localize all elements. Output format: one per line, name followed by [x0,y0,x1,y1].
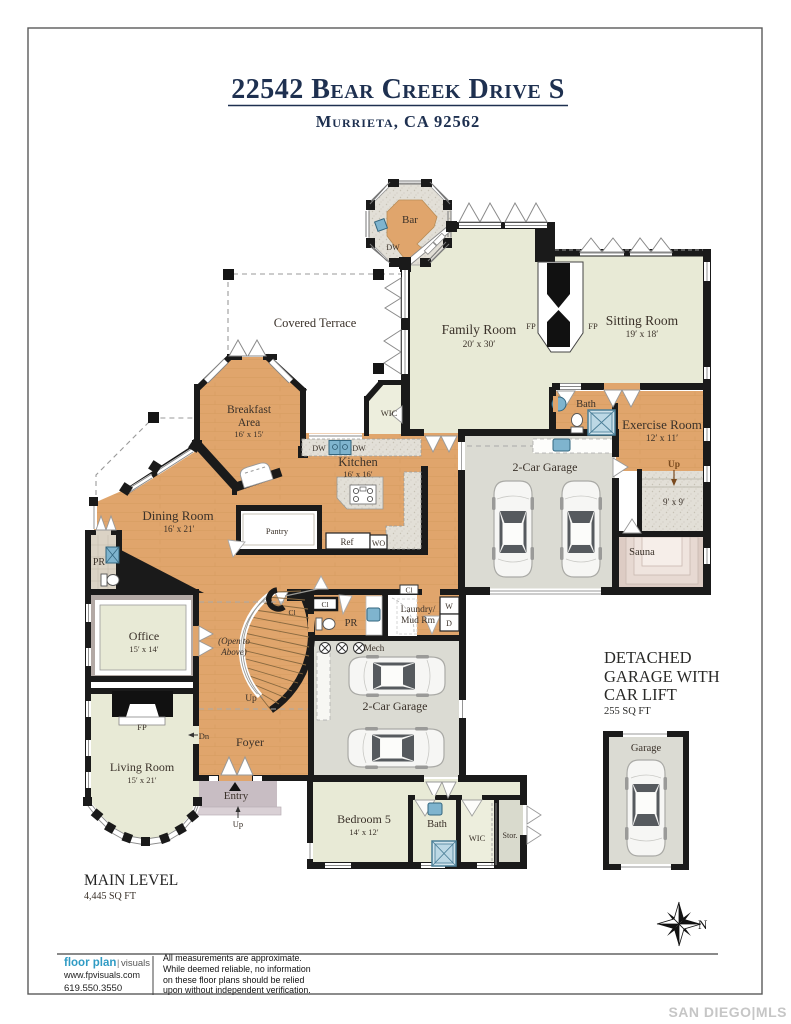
svg-text:Bar: Bar [402,214,418,226]
svg-text:16′ x 16′: 16′ x 16′ [343,469,372,479]
svg-text:20′ x 30′: 20′ x 30′ [463,340,496,350]
svg-text:on these floor plans should be: on these floor plans should be relied [163,975,304,985]
svg-text:Family Room: Family Room [442,322,517,337]
svg-text:Bedroom 5: Bedroom 5 [337,812,391,826]
svg-text:WIC: WIC [381,408,398,418]
svg-text:4,445 SQ FT: 4,445 SQ FT [84,891,136,902]
svg-text:16′ x 15′: 16′ x 15′ [234,429,263,439]
svg-text:Murrieta, CA 92562: Murrieta, CA 92562 [316,112,481,131]
svg-text:Kitchen: Kitchen [338,455,378,469]
svg-text:19′ x 18′: 19′ x 18′ [626,330,659,340]
svg-text:floor plan: floor plan [64,957,116,969]
svg-text:15′ x 14′: 15′ x 14′ [129,644,158,654]
svg-text:CAR LIFT: CAR LIFT [604,685,677,704]
svg-text:15′ x 21′: 15′ x 21′ [127,775,156,785]
svg-text:Pantry: Pantry [266,526,289,536]
svg-text:(Open to: (Open to [218,636,250,646]
svg-text:Bath: Bath [576,399,597,410]
svg-text:Breakfast: Breakfast [227,404,272,416]
svg-text:PR: PR [345,618,358,629]
svg-text:Mud Rm: Mud Rm [401,616,436,626]
svg-text:Dining Room: Dining Room [142,508,213,523]
svg-text:Sitting Room: Sitting Room [606,313,679,328]
svg-text:W: W [445,602,453,611]
svg-text:14′ x 12′: 14′ x 12′ [349,827,378,837]
svg-text:2-Car Garage: 2-Car Garage [363,699,428,713]
svg-text:Living Room: Living Room [110,760,175,774]
svg-text:12′ x 11′: 12′ x 11′ [646,434,678,444]
svg-text:Bath: Bath [427,819,448,830]
svg-text:FP: FP [137,722,147,732]
svg-text:Up: Up [668,460,680,470]
svg-text:visuals: visuals [121,958,150,969]
svg-text:Stor.: Stor. [503,831,518,840]
svg-text:Garage: Garage [631,743,662,754]
svg-text:Cl: Cl [321,600,328,609]
svg-text:SAN DIEGO|MLS: SAN DIEGO|MLS [668,1004,787,1020]
svg-text:|: | [117,958,119,968]
svg-text:Up: Up [245,694,257,704]
svg-text:PR: PR [93,557,106,568]
svg-text:D: D [446,619,452,628]
svg-text:WO: WO [372,539,386,548]
svg-text:MAIN LEVEL: MAIN LEVEL [84,872,178,889]
svg-text:Foyer: Foyer [236,735,264,749]
svg-text:Office: Office [129,629,159,643]
svg-text:GARAGE WITH: GARAGE WITH [604,667,720,686]
svg-text:www.fpvisuals.com: www.fpvisuals.com [63,970,140,980]
svg-text:Above): Above) [220,647,246,657]
svg-text:DETACHED: DETACHED [604,648,692,667]
svg-text:Mech: Mech [364,643,385,653]
svg-text:upon without independent verif: upon without independent verification. [163,985,311,995]
svg-text:DW: DW [352,444,366,453]
svg-text:DW: DW [386,243,400,252]
svg-text:Dn: Dn [199,731,210,741]
svg-text:Up: Up [233,819,243,829]
svg-text:FP: FP [526,321,536,331]
svg-text:Ref: Ref [341,537,354,547]
svg-text:Covered Terrace: Covered Terrace [274,316,357,330]
svg-text:Area: Area [238,417,260,429]
svg-text:While deemed reliable, no info: While deemed reliable, no information [163,964,311,974]
svg-text:2-Car Garage: 2-Car Garage [513,460,578,474]
svg-text:FP: FP [588,321,598,331]
svg-text:Cl: Cl [405,586,412,595]
svg-text:255 SQ FT: 255 SQ FT [604,706,651,717]
svg-text:Sauna: Sauna [629,547,655,558]
svg-text:All measurements are approxima: All measurements are approximate. [163,953,302,963]
svg-text:WIC: WIC [469,833,486,843]
svg-text:Cl: Cl [288,608,295,617]
svg-text:Entry: Entry [224,790,249,802]
svg-text:9′ x 9′: 9′ x 9′ [663,497,685,507]
svg-text:Laundry/: Laundry/ [401,605,436,615]
svg-text:Exercise Room: Exercise Room [622,417,702,432]
svg-text:16′ x 21′: 16′ x 21′ [164,524,195,534]
svg-text:DW: DW [312,444,326,453]
svg-text:619.550.3550: 619.550.3550 [64,983,122,994]
svg-text:22542 Bear Creek Drive S: 22542 Bear Creek Drive S [231,74,565,105]
svg-text:N: N [698,917,708,932]
